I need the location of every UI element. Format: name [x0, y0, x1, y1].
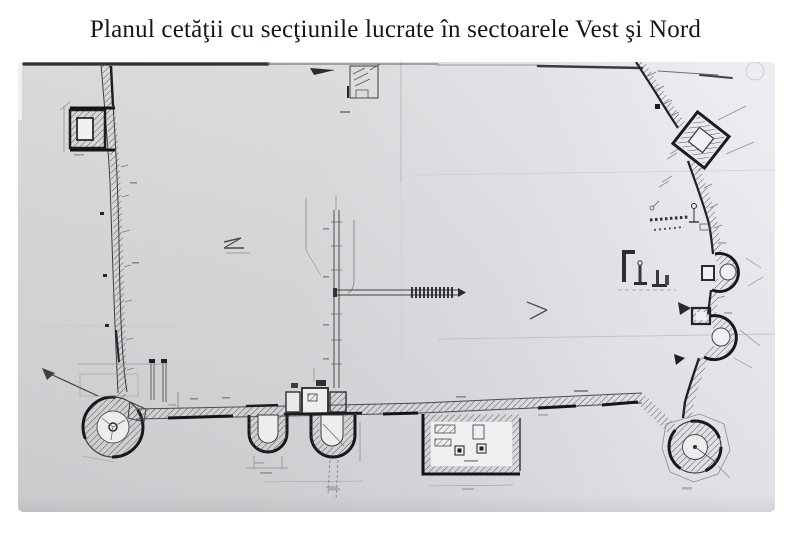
scale-rows	[650, 201, 710, 230]
central-section-trench	[306, 196, 354, 388]
ne-square-tower	[673, 106, 754, 168]
south-tower-left	[246, 415, 288, 474]
se-annex	[423, 414, 520, 490]
south-wall	[136, 390, 673, 430]
z-mark	[224, 238, 250, 253]
south-tower-right	[311, 415, 360, 500]
interior-marks	[224, 64, 710, 319]
v-mark	[527, 302, 547, 319]
horizontal-trench	[333, 287, 466, 298]
survey-arrow	[42, 368, 98, 396]
slide: Planul cetăţii cu secţiunile lucrate în …	[0, 0, 791, 535]
east-tower-upper	[702, 253, 763, 291]
profile-sketches	[618, 250, 676, 290]
fortress-plan-drawing	[18, 62, 775, 512]
fold-lines	[18, 62, 775, 362]
slide-title: Planul cetăţii cu secţiunile lucrate în …	[0, 16, 791, 44]
top-structure	[340, 64, 380, 113]
fortress-plan-scan	[18, 62, 775, 512]
